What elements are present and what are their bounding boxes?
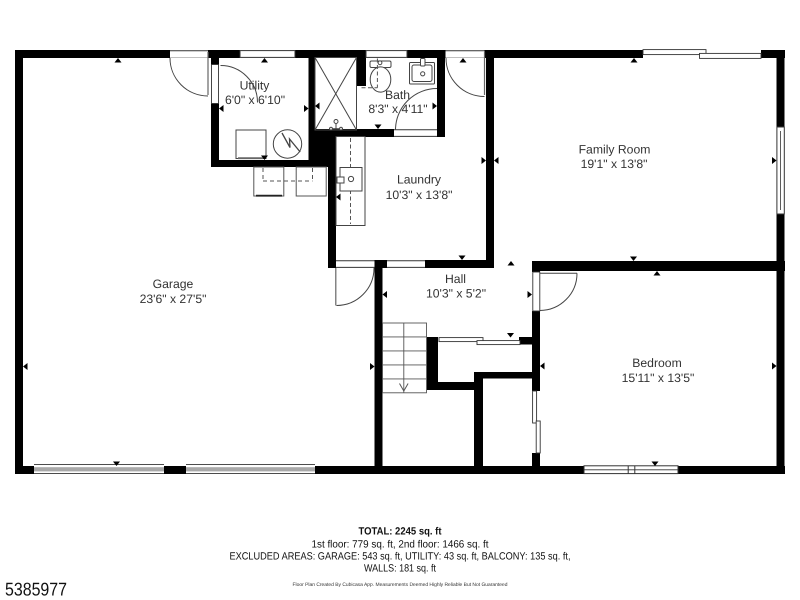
- svg-text:Laundry: Laundry: [397, 173, 442, 187]
- svg-text:Utility: Utility: [240, 79, 271, 93]
- svg-text:6'0" x 6'10": 6'0" x 6'10": [225, 93, 285, 107]
- svg-text:Hall: Hall: [445, 272, 466, 286]
- svg-text:19'1" x 13'8": 19'1" x 13'8": [581, 157, 648, 171]
- svg-text:15'11" x 13'5": 15'11" x 13'5": [622, 371, 695, 385]
- svg-text:EXCLUDED AREAS: GARAGE: 543 sq: EXCLUDED AREAS: GARAGE: 543 sq. ft, UTIL…: [230, 551, 571, 563]
- svg-text:TOTAL: 2245 sq. ft: TOTAL: 2245 sq. ft: [359, 526, 442, 538]
- svg-text:8'3" x 4'11": 8'3" x 4'11": [368, 102, 427, 116]
- svg-text:WALLS: 181 sq. ft: WALLS: 181 sq. ft: [364, 563, 436, 575]
- svg-text:1st floor: 779 sq. ft, 2nd flo: 1st floor: 779 sq. ft, 2nd floor: 1466 s…: [312, 539, 489, 551]
- svg-text:10'3" x 5'2": 10'3" x 5'2": [426, 287, 486, 301]
- svg-text:Garage: Garage: [153, 277, 194, 291]
- svg-text:5385977: 5385977: [5, 579, 67, 600]
- svg-text:10'3" x 13'8": 10'3" x 13'8": [386, 188, 453, 202]
- svg-text:Family Room: Family Room: [579, 143, 651, 157]
- svg-text:Bedroom: Bedroom: [632, 356, 681, 370]
- svg-text:Bath: Bath: [385, 88, 410, 102]
- svg-text:23'6" x 27'5": 23'6" x 27'5": [140, 292, 207, 306]
- svg-text:Floor Plan Created By Cubicasa: Floor Plan Created By Cubicasa App. Meas…: [293, 582, 508, 588]
